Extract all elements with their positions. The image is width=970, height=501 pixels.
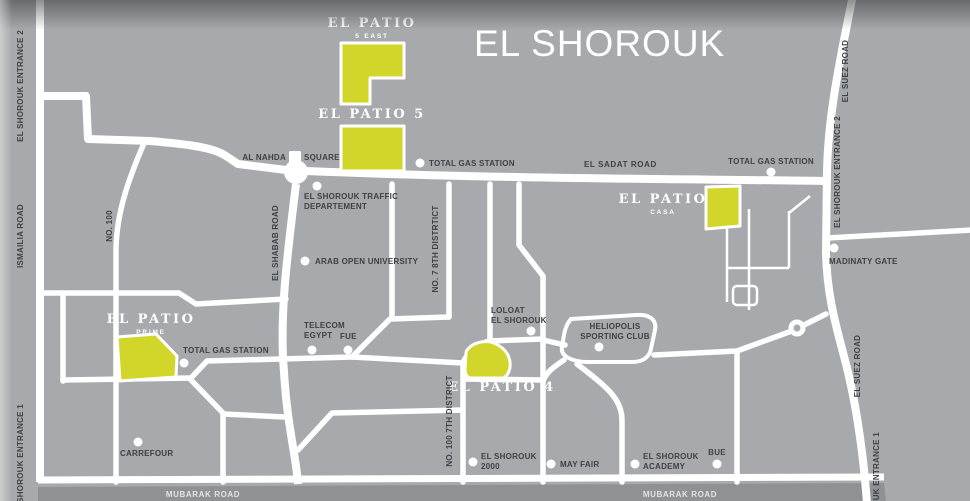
label-madinaty-gate: MADINATY GATE [829, 257, 898, 267]
label-loloat: LOLOAT EL SHOROUK [491, 306, 547, 326]
label-heliopolis: HELIOPOLIS SPORTING CLUB [570, 322, 660, 342]
al-nahda-square-marker [289, 151, 301, 163]
label-al-nahda: AL NAHDA [206, 153, 286, 163]
patio-prime-name: EL PATIO [81, 313, 221, 328]
el-shorouk-2000-dot [469, 458, 478, 467]
label-shabab-road: EL SHABAB ROAD [271, 205, 281, 281]
label-no-100: NO. 100 [105, 210, 115, 242]
al-nahda-roundabout [284, 160, 308, 184]
madinaty-gate-dot [830, 244, 839, 253]
mubarak-road-edge [38, 477, 884, 480]
may-fair-dot [547, 460, 556, 469]
label-carrefour: CARREFOUR [120, 449, 173, 459]
loloat-line-2: EL SHOROUK [491, 316, 547, 326]
gas-station-2-dot [767, 168, 776, 177]
label-patio-5-east: EL PATIO 5 EAST [302, 17, 442, 41]
label-ismailia-road: ISMAILIA ROAD [16, 204, 26, 268]
label-arab-open-university: ARAB OPEN UNIVERSITY [315, 257, 418, 267]
telecom-egypt-dot [308, 346, 317, 355]
gas-station-1-dot [416, 159, 425, 168]
label-district-100-7th: NO. 100 7TH DISTRICT [445, 375, 455, 466]
patio-prime-subtitle: PRIME [81, 329, 221, 337]
heliopolis-dot [595, 343, 604, 352]
label-may-fair: MAY FAIR [560, 460, 599, 470]
label-district-7-8th: NO. 7 8TH DISTRTICT [431, 206, 441, 293]
label-sadat-road: EL SADAT ROAD [584, 160, 657, 170]
patio-5-east-subtitle: 5 EAST [302, 33, 442, 41]
gas-station-3-dot [180, 359, 189, 368]
heliopolis-line-2: SPORTING CLUB [570, 332, 660, 342]
parcel-patio-5-east [341, 43, 404, 104]
label-entrance2-right: EL SHOROUK ENTRANCE 2 [833, 116, 843, 228]
el-shorouk-map: EL SHOROUK EL PATIO 5 EAST EL PATIO 5 EL… [0, 0, 970, 501]
carrefour-dot [134, 438, 143, 447]
traffic-line-1: EL SHOROUK TRAFFIC [304, 192, 398, 202]
label-mubarak-road-right: MUBARAK ROAD [635, 490, 725, 500]
telecom-line-2: EGYPT [304, 331, 345, 341]
heliopolis-line-1: HELIOPOLIS [570, 322, 660, 332]
label-entrance1-right: EL SHOROUK ENTRANCE 1 [872, 432, 882, 501]
traffic-department-dot [313, 182, 322, 191]
label-suez-road-top: EL SUEZ ROAD [841, 40, 851, 102]
label-patio-5: EL PATIO 5 [302, 108, 442, 123]
shorouk-2000-line-2: 2000 [481, 462, 537, 472]
shorouk-2000-line-1: EL SHOROUK [481, 452, 537, 462]
label-bue: BUE [703, 448, 731, 458]
patio-casa-subtitle: CASA [593, 209, 733, 217]
label-entrance2-left: EL SHOROUK ENTRANCE 2 [16, 30, 26, 142]
label-entrance1-left: EL SHOROUK ENTRANCE 1 [16, 404, 26, 501]
label-fue: FUE [340, 332, 357, 342]
label-telecom-egypt: TELECOM EGYPT [304, 321, 345, 341]
traffic-line-2: DEPARTEMENT [304, 202, 398, 212]
patio-5-name: EL PATIO 5 [302, 108, 442, 123]
academy-line-2: ACADEMY [643, 462, 699, 472]
parcel-patio-5 [341, 126, 404, 171]
label-patio-casa: EL PATIO CASA [593, 193, 733, 217]
loloat-line-1: LOLOAT [491, 306, 547, 316]
patio-5-east-name: EL PATIO [302, 17, 442, 32]
label-el-shorouk-2000: EL SHOROUK 2000 [481, 452, 537, 472]
loloat-dot [527, 327, 536, 336]
parcel-patio-4 [465, 342, 510, 378]
mini-roundabout [791, 322, 803, 334]
label-traffic-department: EL SHOROUK TRAFFIC DEPARTEMENT [304, 192, 398, 212]
label-mubarak-road-left: MUBARAK ROAD [158, 490, 248, 500]
academy-dot [631, 460, 640, 469]
map-title: EL SHOROUK [474, 25, 725, 62]
patio-casa-name: EL PATIO [593, 193, 733, 208]
label-suez-road-mid: EL SUEZ ROAD [853, 335, 863, 397]
bue-dot [713, 460, 722, 469]
shabab-road-line [283, 184, 298, 484]
label-gas-station-1: TOTAL GAS STATION [429, 159, 515, 169]
telecom-line-1: TELECOM [304, 321, 345, 331]
fue-dot [344, 346, 353, 355]
academy-line-1: EL SHOROUK [643, 452, 699, 462]
label-patio-prime: EL PATIO PRIME [81, 313, 221, 337]
arab-open-university-dot [301, 257, 310, 266]
label-gas-station-2: TOTAL GAS STATION [726, 157, 816, 167]
parcel-patio-prime [117, 334, 177, 381]
map-canvas [0, 0, 970, 501]
label-square: SQUARE [304, 153, 340, 163]
label-academy: EL SHOROUK ACADEMY [643, 452, 699, 472]
label-gas-station-3: TOTAL GAS STATION [183, 346, 269, 356]
